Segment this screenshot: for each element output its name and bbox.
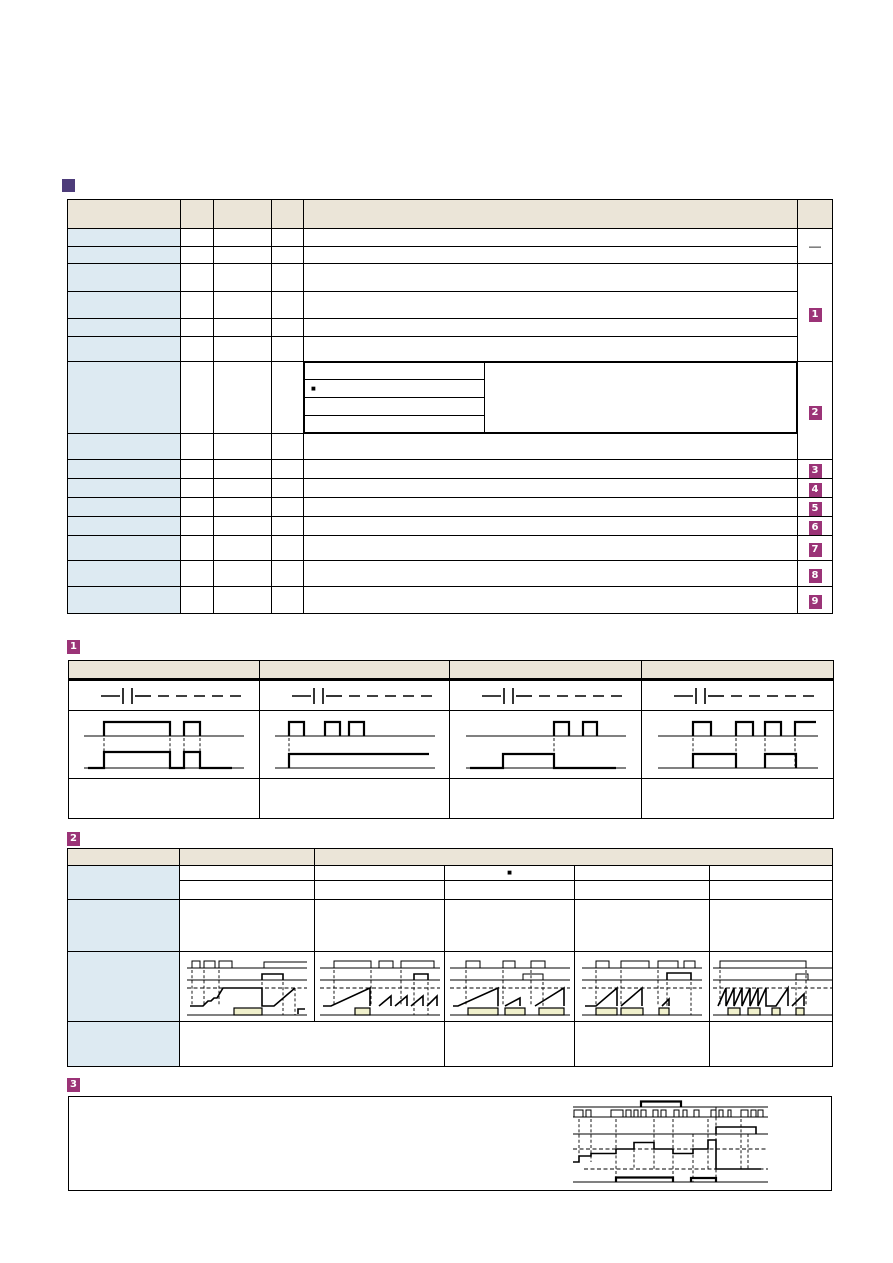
- header-cell: [304, 200, 798, 229]
- table-row: 8: [68, 561, 833, 587]
- note-cell: [450, 779, 642, 819]
- subheader-cell: [315, 866, 445, 881]
- subheader-cell: [445, 881, 575, 900]
- reference-cell: 7: [798, 536, 833, 561]
- row-label-cell: [68, 337, 181, 362]
- reference-cell: 4: [798, 479, 833, 498]
- subheader-row: ■: [68, 866, 833, 881]
- timing-diagram-cell: [445, 952, 575, 1022]
- header-cell: [272, 200, 304, 229]
- header-cell: [450, 661, 642, 680]
- subheader-row: [68, 881, 833, 900]
- timing-mode-table-1: [68, 660, 834, 819]
- contact-symbol-icon: [476, 685, 626, 707]
- subheader-cell: [180, 866, 315, 881]
- contact-symbol-cell: [642, 680, 834, 711]
- timing-diagram-row: [69, 711, 834, 779]
- table-row: [68, 900, 833, 952]
- footnote-badge: 3: [809, 464, 822, 478]
- mode-header-row: [68, 849, 833, 866]
- section-heading-square-icon: [62, 179, 75, 192]
- sawtooth-timing-diagram: [710, 954, 836, 1020]
- row-label-cell: [68, 517, 181, 536]
- note-cell: [642, 779, 834, 819]
- timing-diagram-cell: [180, 952, 315, 1022]
- footnote-badge: 7: [809, 543, 822, 557]
- table-row: [68, 247, 833, 264]
- table-row: [68, 319, 833, 337]
- subheader-cell: [315, 881, 445, 900]
- contact-symbol-cell: [260, 680, 450, 711]
- table-row: —: [68, 229, 833, 247]
- table-row: [68, 337, 833, 362]
- sawtooth-timing-diagram: [447, 954, 573, 1020]
- nested-merged-cell: [485, 363, 797, 433]
- table-row: 7: [68, 536, 833, 561]
- nested-row: [305, 398, 485, 416]
- footnote-section-badge: 1: [67, 640, 80, 654]
- timing-diagram: [456, 714, 636, 776]
- table-row: 3: [68, 460, 833, 479]
- row-label-cell: [68, 561, 181, 587]
- table-row: 4: [68, 479, 833, 498]
- header-cell: [260, 661, 450, 680]
- row-label-cell: [68, 952, 180, 1022]
- footnote-section-badge: 3: [67, 1078, 80, 1092]
- note-row: [69, 779, 834, 819]
- footnote-badge: 5: [809, 502, 822, 516]
- row-label-cell: [68, 229, 181, 247]
- header-cell: [68, 849, 180, 866]
- timing-diagram: [74, 714, 254, 776]
- header-cell-merged: [315, 849, 833, 866]
- header-cell: [180, 849, 315, 866]
- row-label-cell: [68, 536, 181, 561]
- footnote-badge: 1: [809, 308, 822, 322]
- row-label-cell: [68, 292, 181, 319]
- reference-cell: 3: [798, 460, 833, 479]
- timing-diagram: [648, 714, 828, 776]
- subheader-cell: [710, 881, 833, 900]
- sawtooth-timing-diagram: [184, 954, 310, 1020]
- nested-row-bullet: ■: [305, 380, 485, 398]
- subheader-cell: [180, 881, 315, 900]
- contact-symbol-cell: [450, 680, 642, 711]
- note-cell: [260, 779, 450, 819]
- row-label-cell: [68, 900, 180, 952]
- row-label-cell: [68, 866, 180, 900]
- nested-option-table: ■: [304, 362, 797, 433]
- reference-cell: 8: [798, 561, 833, 587]
- reference-cell: 5: [798, 498, 833, 517]
- timing-diagram-cell: [260, 711, 450, 779]
- timing-diagram-cell: [642, 711, 834, 779]
- footnote-section-badge: 2: [67, 832, 80, 846]
- contact-symbol-icon: [668, 685, 818, 707]
- table-row: ■ 2: [68, 362, 833, 434]
- contact-symbol-icon: [95, 685, 245, 707]
- row-label-cell: [68, 434, 181, 460]
- timing-diagram: [265, 714, 445, 776]
- note-row: [68, 1022, 833, 1067]
- reference-cell: 1: [798, 264, 833, 362]
- timing-diagram-cell: [575, 952, 710, 1022]
- footnote-badge: 4: [809, 483, 822, 497]
- row-label-cell: [68, 587, 181, 614]
- row-label-cell: [68, 460, 181, 479]
- row-label-cell: [68, 1022, 180, 1067]
- footnote-badge: 8: [809, 569, 822, 583]
- timing-diagram-cell: [315, 952, 445, 1022]
- nested-row: [305, 363, 485, 380]
- note-cell: [445, 1022, 575, 1067]
- sawtooth-timing-diagram: [579, 954, 705, 1020]
- header-cell: [69, 661, 260, 680]
- datasheet-page: — 1 ■: [0, 0, 893, 1263]
- timing-diagram-cell: [710, 952, 833, 1022]
- note-cell: [575, 1022, 710, 1067]
- subheader-cell: [710, 866, 833, 881]
- table-row: 6: [68, 517, 833, 536]
- contact-symbol-row: [69, 680, 834, 711]
- contact-symbol-icon: [286, 685, 436, 707]
- nested-row: [305, 416, 485, 433]
- footnote-badge: 9: [809, 595, 822, 609]
- row-label-cell: [68, 479, 181, 498]
- note-cell: [710, 1022, 833, 1067]
- main-table-header-row: [68, 200, 833, 229]
- nested-list-cell: ■: [304, 362, 798, 434]
- note-cell: [69, 779, 260, 819]
- timing-diagram-row: [68, 952, 833, 1022]
- sawtooth-timing-diagram: [317, 954, 443, 1020]
- reference-cell: 9: [798, 587, 833, 614]
- row-label-cell: [68, 264, 181, 292]
- header-cell: [68, 200, 181, 229]
- row-label-cell: [68, 498, 181, 517]
- table-row: [68, 434, 833, 460]
- subheader-cell-bullet: ■: [445, 866, 575, 881]
- subheader-cell: [575, 881, 710, 900]
- table-row: 1: [68, 264, 833, 292]
- reference-cell: 6: [798, 517, 833, 536]
- table-row: 9: [68, 587, 833, 614]
- timing-diagram-cell: [69, 711, 260, 779]
- reference-cell: —: [798, 229, 833, 264]
- mode-header-row: [69, 661, 834, 680]
- table-row: 5: [68, 498, 833, 517]
- footnote-badge: 6: [809, 521, 822, 535]
- header-cell: [181, 200, 214, 229]
- row-label-cell: [68, 319, 181, 337]
- timing-mode-table-2: ■: [67, 848, 833, 1067]
- row-label-cell: [68, 362, 181, 434]
- header-cell: [798, 200, 833, 229]
- counter-timing-diagram: [569, 1098, 781, 1189]
- footnote-badge: 2: [809, 406, 822, 420]
- footnote-box: [68, 1096, 832, 1191]
- header-cell: [214, 200, 272, 229]
- note-cell: [180, 1022, 445, 1067]
- timing-diagram-cell: [450, 711, 642, 779]
- reference-cell: 2: [798, 362, 833, 460]
- subheader-cell: [575, 866, 710, 881]
- table-row: [68, 292, 833, 319]
- header-cell: [642, 661, 834, 680]
- main-spec-table: — 1 ■: [67, 199, 833, 614]
- contact-symbol-cell: [69, 680, 260, 711]
- row-label-cell: [68, 247, 181, 264]
